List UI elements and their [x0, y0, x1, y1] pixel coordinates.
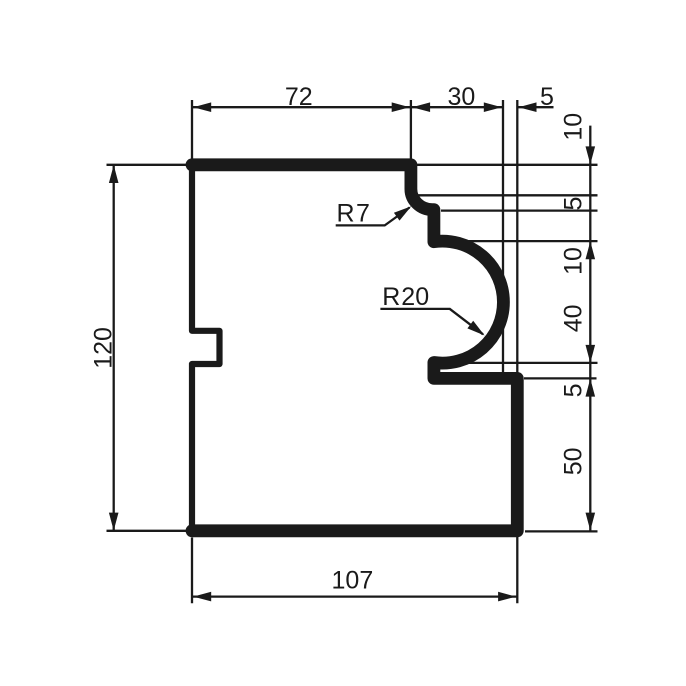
svg-text:30: 30 [447, 83, 475, 111]
svg-text:40: 40 [560, 304, 588, 332]
svg-text:7: 7 [356, 200, 370, 228]
svg-text:5: 5 [560, 197, 588, 211]
svg-text:107: 107 [332, 567, 374, 595]
svg-text:10: 10 [560, 113, 588, 141]
svg-text:R: R [382, 283, 400, 311]
svg-text:72: 72 [285, 83, 313, 111]
svg-text:5: 5 [540, 83, 554, 111]
svg-text:50: 50 [560, 447, 588, 475]
svg-text:R: R [337, 200, 355, 228]
svg-text:5: 5 [560, 383, 588, 397]
svg-text:20: 20 [401, 283, 429, 311]
svg-text:120: 120 [89, 327, 117, 369]
svg-text:10: 10 [560, 247, 588, 275]
